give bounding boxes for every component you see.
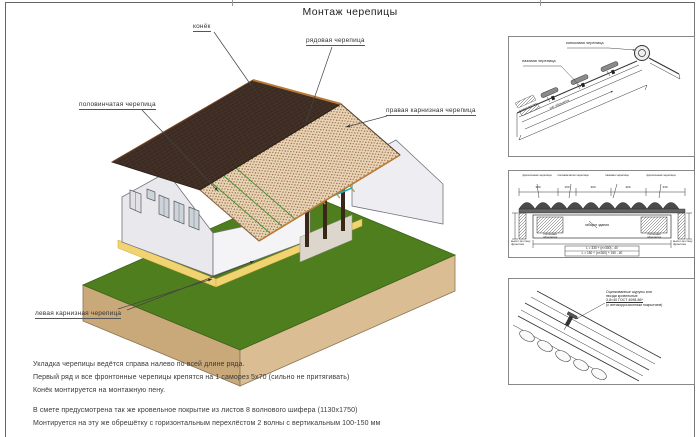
note-line: В смете предусмотрена так же кровельное … — [33, 404, 380, 417]
panel2-hatch-label-right: сплошная обрешётка — [641, 233, 667, 239]
cross-section-drawing — [509, 171, 694, 257]
panel2-dim: 300 — [620, 186, 636, 189]
notes-block-1: Укладка черепицы ведётся справа налево п… — [33, 358, 349, 397]
label-left-eave-tile: левая карнизная черепица — [35, 311, 121, 319]
panel2-formula-2: L = 150 + (n×300) + 150 - 40 — [566, 252, 638, 256]
label-ridge: конёк — [193, 24, 211, 32]
notes-block-2: В смете предусмотрена так же кровельное … — [33, 404, 380, 430]
detail-panel-fastening: Оцинкованные шурупы или гвозди кровельны… — [508, 278, 695, 385]
sheathing-board — [519, 209, 685, 213]
hatched-block-left — [537, 217, 563, 233]
panel2-col-label: фронтонная черепица — [519, 174, 555, 177]
ridge-section-drawing — [509, 37, 694, 156]
label-row-tile: рядовая черепица — [306, 38, 365, 46]
panel2-dim: 330 — [657, 186, 673, 189]
panel3-note-line: (с антикоррозионным покрытием) — [606, 303, 690, 307]
tile-profiles — [540, 61, 618, 101]
panel2-col-label: пазовая черепица — [599, 174, 635, 177]
panel3-note: Оцинкованные шурупы или гвозди кровельны… — [606, 290, 690, 308]
panel3-leader — [576, 303, 605, 319]
panel2-col-label: половинчатая черепица — [555, 174, 591, 177]
panel2-dim: 330 — [530, 186, 546, 189]
note-line: Монтируется на эту же обрешётку с горизо… — [33, 417, 380, 430]
shingle-tiles — [518, 328, 608, 382]
panel2-dim: 300 — [585, 186, 601, 189]
label-half-tile: половинчатая черепица — [79, 102, 156, 110]
panel2-right-label: вылет за стену фронтона — [673, 240, 693, 246]
hatched-block-right — [641, 217, 667, 233]
note-line: Первый ряд и все фронтонные черепицы кре… — [33, 371, 349, 384]
note-line: Укладка черепицы ведётся справа налево п… — [33, 358, 349, 371]
detail-panel-cross-section: фронтонная черепица половинчатая черепиц… — [508, 170, 695, 258]
screw-fastener — [560, 312, 577, 333]
label-right-eave-tile: правая карнизная черепица — [386, 108, 476, 116]
tile-wave-profile — [519, 203, 679, 210]
panel2-hatch-label-left: сплошная обрешётка — [537, 233, 563, 239]
panel2-dim: 150 — [559, 186, 575, 189]
panel2-col-label: фронтонная черепица — [643, 174, 679, 177]
panel2-formula-1: L = 330 + (n×300) - 40 — [566, 247, 638, 251]
panel2-left-label: вылет за стену фронтона — [511, 240, 531, 246]
drawing-sheet: Монтаж черепицы — [0, 0, 700, 437]
panel1-label-ridge-tile: коньковая черепица — [566, 41, 604, 46]
note-line: Конёк монтируется на монтажную пену. — [33, 384, 349, 397]
detail-panel-ridge-section: коньковая черепица пазовая черепица шаг … — [508, 36, 695, 157]
ridge-cap-detail — [635, 46, 681, 80]
panel2-center-label: габарит здания — [585, 224, 609, 228]
panel1-label-groove-tile: пазовая черепица — [522, 59, 556, 64]
